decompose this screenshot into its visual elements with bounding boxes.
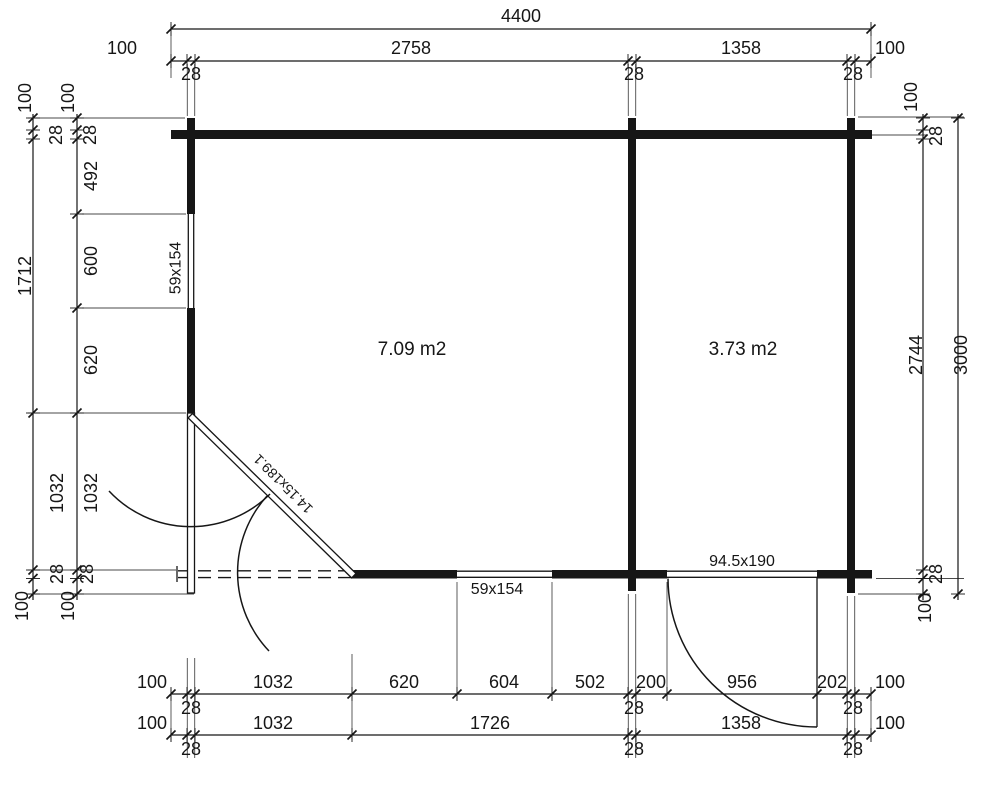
room-area-left: 7.09 m2 [378,339,447,360]
dim-label: 28 [843,739,863,759]
top-wall [171,130,872,139]
dim-label: 28 [46,125,66,145]
dim-label: 28 [624,739,644,759]
dim-label: 1032 [253,672,293,692]
dim-label: 28 [181,698,201,718]
dim-label: 600 [81,246,101,276]
dim-label: 200 [636,672,666,692]
dim-label: 604 [489,672,519,692]
floor-plan-drawing: 4400 100 2758 1358 100 28 28 28 100 1032… [0,0,1006,787]
dim-label: 620 [389,672,419,692]
dim-label: 28 [77,564,97,584]
dim-label: 28 [624,698,644,718]
partition-wall [628,118,636,591]
dim-label: 100 [107,38,137,58]
dim-label: 28 [80,125,100,145]
right-door [667,571,817,727]
dim-label: 28 [624,64,644,84]
dim-label: 2758 [391,38,431,58]
floor-plan-page: 4400 100 2758 1358 100 28 28 28 100 1032… [0,0,1006,787]
dim-label: 1712 [15,256,35,296]
dim-label: 492 [81,161,101,191]
dim-label: 28 [843,64,863,84]
dim-label: 502 [575,672,605,692]
door-leaf-open [188,414,356,578]
corner-door [109,413,356,651]
dim-label: 28 [181,739,201,759]
dim-label: 28 [181,64,201,84]
dim-label: 100 [15,83,35,113]
dim-label: 100 [137,672,167,692]
left-wall-mid [187,308,195,413]
right-door-size-label: 94.5x190 [709,553,775,570]
door-swing-arc [668,579,817,728]
right-wall [847,118,855,593]
dim-label: 28 [926,564,946,584]
dim-label: 1032 [81,473,101,513]
left-wall-upper [187,118,195,214]
dim-label: 1032 [253,713,293,733]
labels: 4400 100 2758 1358 100 28 28 28 100 1032… [12,6,971,759]
dim-label: 620 [81,345,101,375]
dim-label: 100 [875,713,905,733]
bottom-wall-seg1 [352,570,457,579]
dim-label: 3000 [951,335,971,375]
bottom-window-size-label: 59x154 [471,581,524,598]
dim-label: 100 [875,672,905,692]
dim-label: 28 [926,126,946,146]
dim-label: 2744 [906,335,926,375]
dim-label: 1726 [470,713,510,733]
left-window-size-label: 59x154 [168,242,185,295]
bottom-wall-seg2 [552,570,667,579]
dim-label: 1358 [721,38,761,58]
door-swing-arc [238,496,269,651]
dim-label: 100 [12,591,32,621]
dim-label: 1358 [721,713,761,733]
dim-label: 100 [875,38,905,58]
room-area-right: 3.73 m2 [709,339,778,360]
dim-label: 100 [58,591,78,621]
windows [188,214,552,577]
dim-label: 100 [915,593,935,623]
dim-label: 1032 [47,473,67,513]
dim-label: 28 [843,698,863,718]
bottom-wall-seg3 [817,570,872,579]
dim-label: 956 [727,672,757,692]
dim-label-total-width: 4400 [501,6,541,26]
door-leaf-closed [188,413,195,593]
dim-label: 202 [817,672,847,692]
dim-label: 100 [58,83,78,113]
dim-label: 28 [47,564,67,584]
dim-label: 100 [901,82,921,112]
dim-label: 100 [137,713,167,733]
